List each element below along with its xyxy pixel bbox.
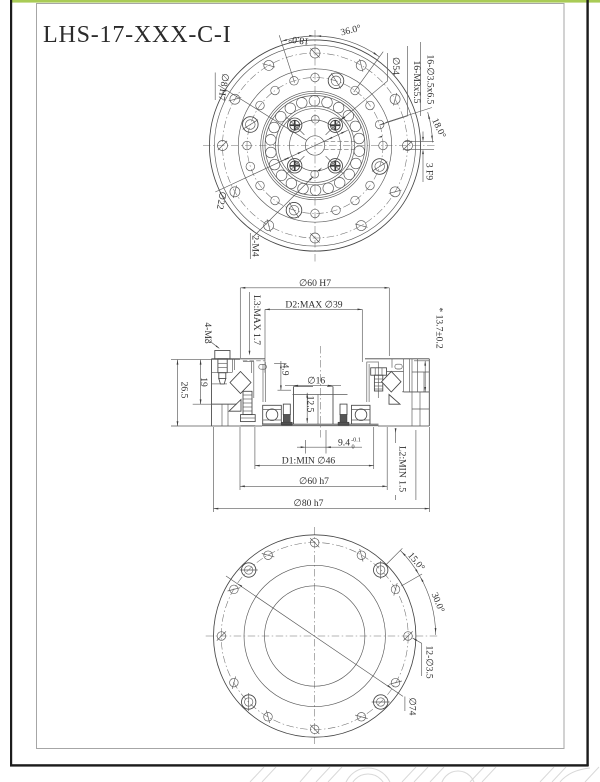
svg-text:4-M3: 4-M3	[202, 322, 213, 344]
svg-text:∅80 h7: ∅80 h7	[294, 498, 324, 509]
svg-text:4.9: 4.9	[280, 364, 291, 376]
svg-text:D2:MAX ∅39: D2:MAX ∅39	[285, 300, 342, 311]
svg-text:LHS-17-XXX-C-I: LHS-17-XXX-C-I	[43, 22, 232, 48]
svg-text:* 13.7±0.2: * 13.7±0.2	[434, 307, 445, 348]
svg-text:L3:MAX 1.7: L3:MAX 1.7	[251, 295, 262, 345]
svg-text:2-M4: 2-M4	[250, 235, 261, 257]
svg-text:16-∅3.5x6.5: 16-∅3.5x6.5	[424, 55, 435, 105]
svg-text:3 F9: 3 F9	[423, 163, 434, 181]
svg-text:∅16: ∅16	[307, 375, 325, 386]
svg-text:12-∅3.5: 12-∅3.5	[424, 646, 435, 679]
svg-text:9.4: 9.4	[338, 438, 350, 449]
svg-text:L2:MIN 1.5: L2:MIN 1.5	[397, 446, 408, 493]
svg-text:-0.1: -0.1	[351, 437, 361, 444]
svg-text:19: 19	[198, 377, 209, 387]
svg-text:D1:MIN ∅46: D1:MIN ∅46	[282, 455, 336, 466]
svg-text:∅60 H7: ∅60 H7	[299, 278, 331, 289]
svg-text:0: 0	[351, 444, 354, 451]
svg-text:12.5: 12.5	[305, 396, 316, 413]
svg-text:∅60 h7: ∅60 h7	[299, 476, 329, 487]
svg-text:26.5: 26.5	[179, 382, 190, 399]
svg-text:∅74: ∅74	[407, 698, 418, 716]
svg-text:∅54: ∅54	[390, 57, 401, 75]
svg-text:16-M3x5.5: 16-M3x5.5	[411, 61, 422, 104]
